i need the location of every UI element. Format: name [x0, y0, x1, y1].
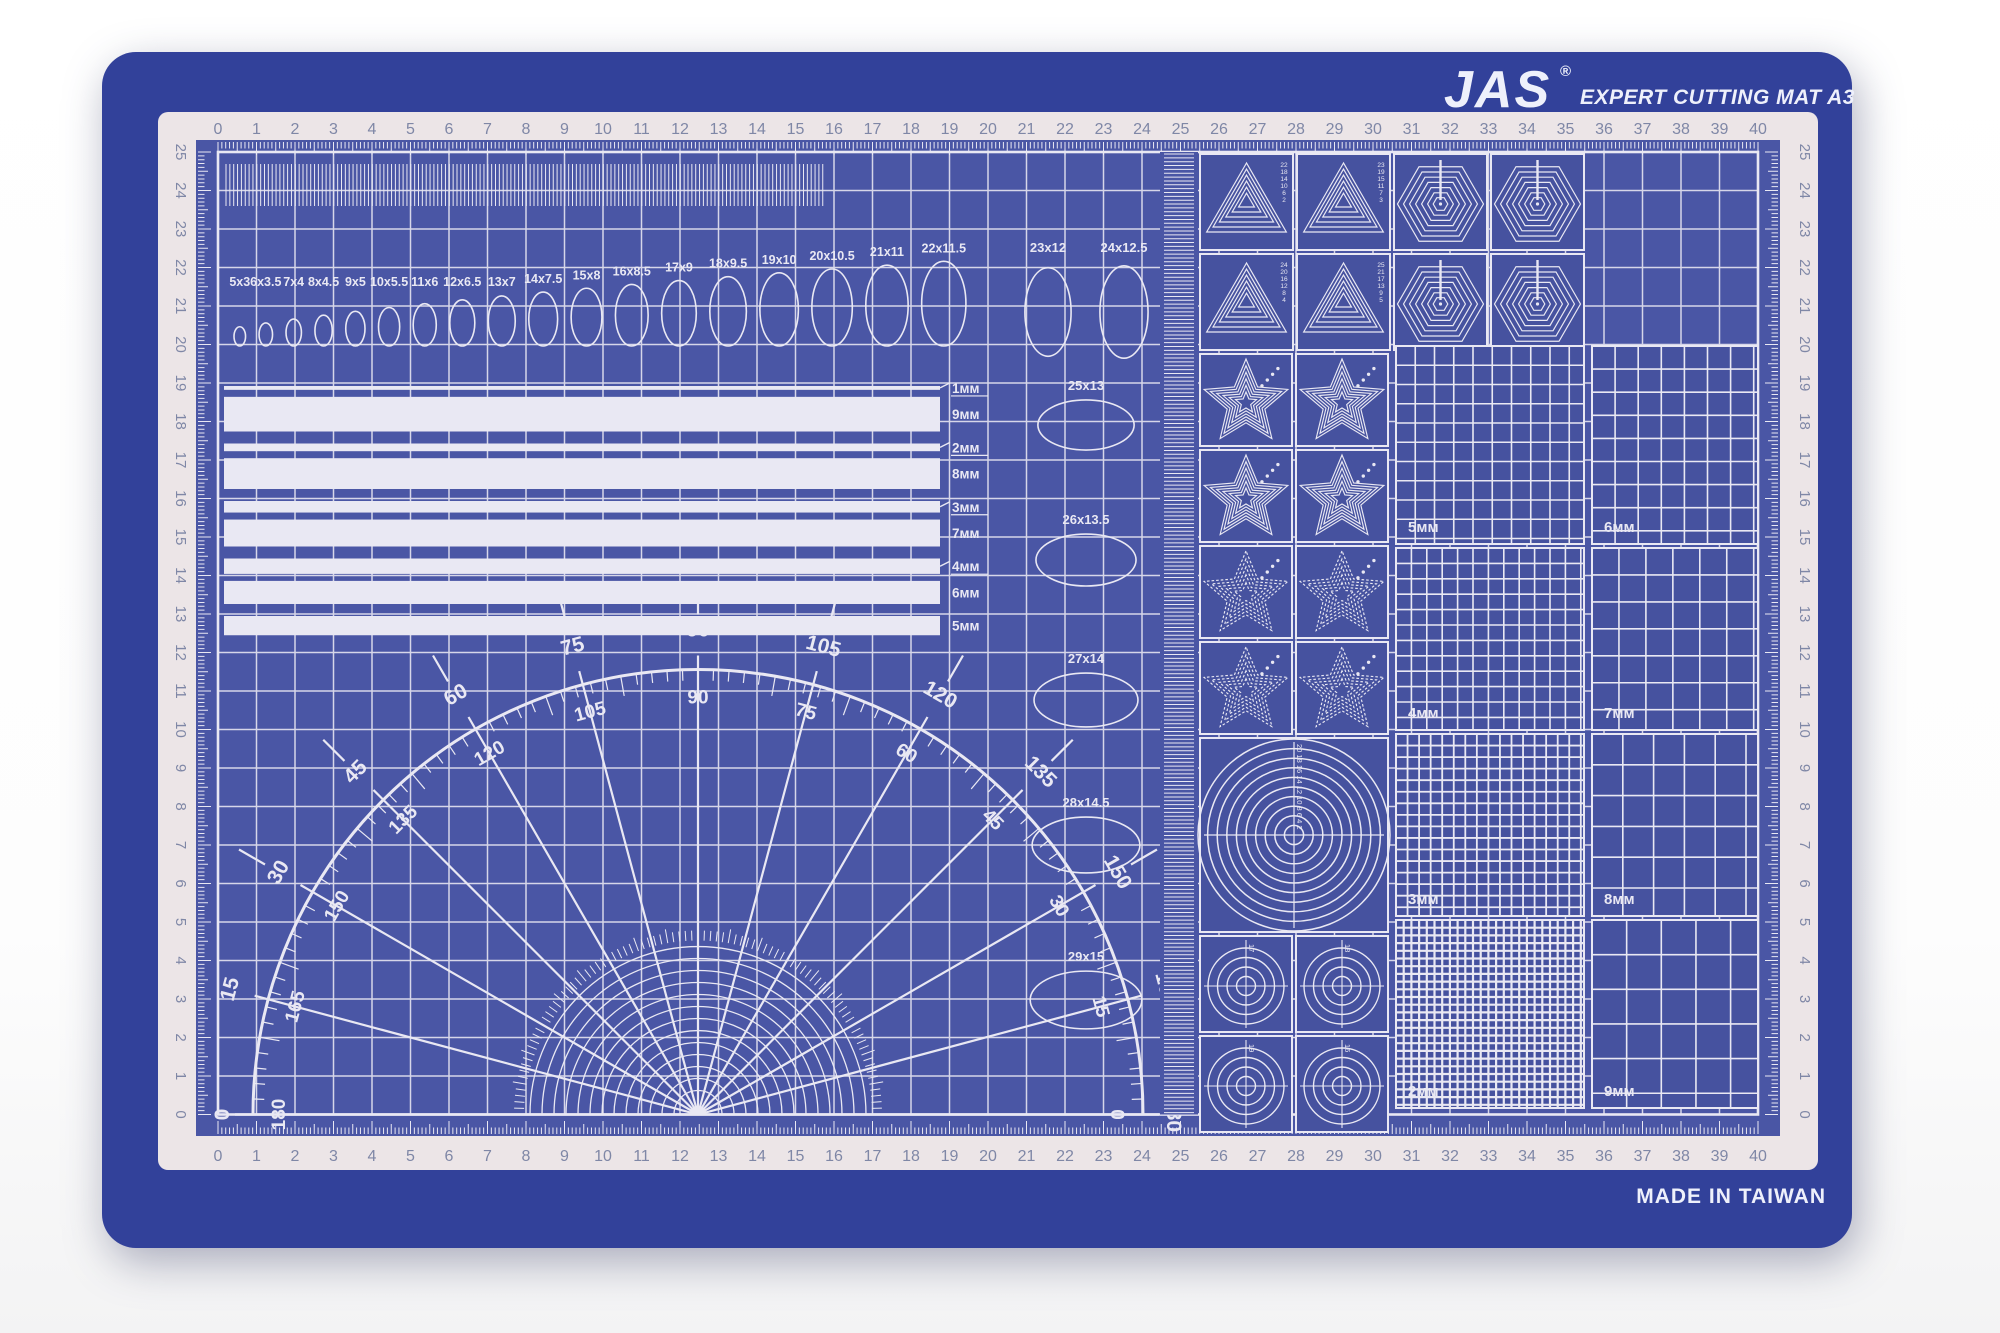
left-ruler-number: 9 — [172, 764, 189, 772]
strip-bar — [224, 559, 940, 574]
ellipse-label: 21x11 — [870, 245, 904, 259]
bottom-ruler-number: 2 — [291, 1148, 300, 1165]
right-ruler-number: 8 — [1796, 802, 1813, 810]
registered-mark-icon: ® — [1560, 63, 1571, 80]
bottom-ruler-number: 13 — [710, 1148, 728, 1165]
top-ruler-number: 36 — [1595, 121, 1613, 138]
right-ruler-number: 19 — [1796, 375, 1813, 392]
right-ruler-number: 22 — [1796, 259, 1813, 276]
star-size-mark — [1367, 565, 1370, 568]
hexagon-center-dot — [1536, 302, 1539, 305]
left-ruler-number: 13 — [172, 606, 189, 623]
right-ruler-number: 11 — [1796, 683, 1813, 699]
strip-label: 4мм — [952, 559, 979, 574]
right-ruler-number: 1 — [1796, 1072, 1813, 1080]
ellipse-label: 8x4.5 — [308, 275, 339, 289]
ellipse-label: 28x14.5 — [1063, 795, 1110, 810]
top-ruler-number: 15 — [787, 121, 805, 138]
top-ruler-number: 32 — [1441, 121, 1459, 138]
strip-label: 7мм — [952, 526, 979, 541]
ellipse-label: 7x4 — [283, 275, 304, 289]
right-ruler-number: 24 — [1796, 182, 1813, 199]
bottom-ruler-number: 16 — [825, 1148, 843, 1165]
cutting-mat-photo: 0011223344556677889910101111121213131414… — [0, 0, 2000, 1333]
strip-label: 3мм — [952, 500, 979, 515]
ellipse-label: 18x9.5 — [709, 257, 747, 271]
mat-title: EXPERT CUTTING MAT A3 — [1580, 86, 1855, 109]
star-size-mark — [1276, 655, 1279, 658]
ellipse-label: 19x10 — [762, 253, 797, 267]
top-ruler-number: 2 — [291, 121, 300, 138]
strip-bar — [224, 501, 940, 513]
angle-label-inner: 0 — [1106, 1109, 1127, 1120]
star-size-mark — [1260, 384, 1263, 387]
star-size-mark — [1266, 666, 1269, 669]
star-size-mark — [1260, 480, 1263, 483]
hexagon-center-dot — [1536, 202, 1539, 205]
top-ruler-number: 30 — [1364, 121, 1382, 138]
mm-grid-patch — [1396, 346, 1584, 544]
strip-bar — [224, 444, 940, 452]
ellipse-label: 16x8.5 — [613, 264, 651, 278]
left-ruler-number: 23 — [172, 221, 189, 238]
angle-label-inner: 180 — [269, 1099, 290, 1131]
top-ruler-number: 38 — [1672, 121, 1690, 138]
star-size-mark — [1271, 565, 1274, 568]
bottom-ruler-number: 37 — [1634, 1148, 1652, 1165]
ellipse-label: 25x13 — [1068, 378, 1104, 393]
mm-grid-patch — [1592, 920, 1758, 1108]
ellipse-label: 10x5.5 — [370, 275, 408, 289]
right-ruler-number: 16 — [1796, 490, 1813, 507]
star-size-mark — [1362, 570, 1365, 573]
mm-grid-patch — [1396, 920, 1584, 1108]
strip-bar — [224, 397, 940, 432]
bottom-ruler-number: 34 — [1518, 1148, 1536, 1165]
bottom-ruler-number: 27 — [1249, 1148, 1267, 1165]
top-ruler-number: 0 — [214, 121, 223, 138]
ellipse-label: 11x6 — [411, 275, 438, 289]
right-ruler-number: 5 — [1796, 918, 1813, 926]
top-ruler-number: 1 — [252, 121, 261, 138]
ellipse-label: 17x9 — [665, 261, 693, 275]
top-ruler-number: 3 — [329, 121, 338, 138]
left-ruler-number: 22 — [172, 259, 189, 276]
bottom-ruler-number: 25 — [1172, 1148, 1190, 1165]
target-size-number: 19 — [1247, 1044, 1256, 1052]
star-size-mark — [1372, 559, 1375, 562]
star-size-mark — [1271, 373, 1274, 376]
left-ruler-number: 12 — [172, 644, 189, 661]
ellipse-label: 29x15 — [1068, 949, 1104, 964]
bottom-ruler-number: 29 — [1326, 1148, 1344, 1165]
star-size-mark — [1260, 576, 1263, 579]
left-ruler-number: 15 — [172, 529, 189, 546]
bottom-ruler-number: 5 — [406, 1148, 415, 1165]
angle-label-outer: 0 — [211, 1109, 234, 1121]
strip-bar — [224, 520, 940, 547]
bottom-ruler-number: 4 — [368, 1148, 377, 1165]
made-in-label: MADE IN TAIWAN — [1636, 1185, 1826, 1208]
top-ruler-number: 16 — [825, 121, 843, 138]
top-ruler-number: 7 — [483, 121, 492, 138]
top-ruler-number: 22 — [1056, 121, 1074, 138]
bottom-ruler-number: 23 — [1095, 1148, 1113, 1165]
top-ruler-number: 28 — [1287, 121, 1305, 138]
bottom-ruler-number: 22 — [1056, 1148, 1074, 1165]
hexagon-center-dot — [1439, 302, 1442, 305]
left-ruler-number: 4 — [172, 956, 189, 964]
left-ruler-number: 24 — [172, 182, 189, 199]
ellipse-label: 26x13.5 — [1063, 512, 1110, 527]
star-size-mark — [1362, 474, 1365, 477]
star-size-mark — [1372, 463, 1375, 466]
angle-label-inner: 90 — [687, 688, 708, 709]
bottom-ruler-number: 15 — [787, 1148, 805, 1165]
bottom-ruler-number: 10 — [594, 1148, 612, 1165]
mm-grid-label: 9мм — [1604, 1083, 1635, 1100]
bottom-ruler-number: 8 — [522, 1148, 531, 1165]
mm-grid-label: 8мм — [1604, 891, 1635, 908]
bottom-ruler-number: 3 — [329, 1148, 338, 1165]
top-ruler-number: 39 — [1711, 121, 1729, 138]
top-ruler-number: 25 — [1172, 121, 1190, 138]
star-size-mark — [1362, 666, 1365, 669]
photo-stage: 0011223344556677889910101111121213131414… — [0, 0, 2000, 1333]
top-ruler-number: 6 — [445, 121, 454, 138]
thickness-strips: 1мм9мм2мм8мм3мм7мм4мм6мм5мм — [224, 381, 988, 635]
top-ruler-number: 35 — [1557, 121, 1575, 138]
right-ruler-number: 23 — [1796, 221, 1813, 238]
left-ruler-number: 21 — [172, 298, 189, 315]
bottom-ruler-number: 18 — [902, 1148, 920, 1165]
star-size-mark — [1276, 559, 1279, 562]
bottom-ruler-number: 0 — [214, 1148, 223, 1165]
mm-grid-label: 7мм — [1604, 705, 1635, 722]
target-size-number: 17 — [1247, 944, 1256, 952]
mm-grid-patch — [1592, 346, 1758, 544]
bottom-ruler-number: 17 — [864, 1148, 882, 1165]
brand-logo: JAS — [1444, 61, 1551, 119]
ellipse-label: 5x3 — [229, 275, 250, 289]
mm-grid-label: 2мм — [1408, 1083, 1439, 1100]
bottom-ruler-number: 38 — [1672, 1148, 1690, 1165]
left-ruler-number: 2 — [172, 1033, 189, 1041]
bottom-ruler-number: 1 — [252, 1148, 261, 1165]
ellipse-label: 13x7 — [488, 275, 516, 289]
star-size-mark — [1271, 469, 1274, 472]
bottom-ruler-number: 20 — [979, 1148, 997, 1165]
ellipse-label: 24x12.5 — [1101, 240, 1148, 255]
strip-bar — [224, 458, 940, 489]
bottom-ruler-number: 30 — [1364, 1148, 1382, 1165]
ellipse-label: 23x12 — [1030, 240, 1066, 255]
bottom-ruler-number: 36 — [1595, 1148, 1613, 1165]
left-ruler-number: 0 — [172, 1110, 189, 1118]
right-ruler-number: 14 — [1796, 567, 1813, 584]
left-ruler-number: 18 — [172, 413, 189, 430]
star-size-mark — [1367, 661, 1370, 664]
mm-grid-label: 4мм — [1408, 705, 1439, 722]
top-ruler-number: 21 — [1018, 121, 1036, 138]
angle-label-outer: 90 — [686, 619, 709, 642]
star-size-mark — [1276, 367, 1279, 370]
ellipse-label: 14x7.5 — [524, 272, 562, 286]
top-ruler-number: 29 — [1326, 121, 1344, 138]
left-ruler-number: 5 — [172, 918, 189, 926]
right-ruler-number: 21 — [1796, 298, 1813, 315]
star-size-mark — [1260, 672, 1263, 675]
bottom-ruler-number: 39 — [1711, 1148, 1729, 1165]
bottom-mm-ruler-ticks — [218, 1121, 1758, 1134]
mm-grid-patch — [1396, 734, 1584, 916]
ellipse-label: 6x3.5 — [250, 275, 281, 289]
top-ruler-number: 23 — [1095, 121, 1113, 138]
bottom-ruler-number: 14 — [748, 1148, 766, 1165]
star-size-mark — [1356, 480, 1359, 483]
star-size-mark — [1356, 672, 1359, 675]
left-ruler-number: 1 — [172, 1072, 189, 1080]
right-ruler-number: 17 — [1796, 452, 1813, 469]
top-ruler-number: 20 — [979, 121, 997, 138]
left-ruler-number: 20 — [172, 336, 189, 353]
bottom-ruler-number: 26 — [1210, 1148, 1228, 1165]
top-ruler-number: 31 — [1403, 121, 1421, 138]
star-size-mark — [1271, 661, 1274, 664]
strip-bar — [224, 616, 940, 635]
ellipse-label: 22x11.5 — [922, 241, 967, 255]
star-size-mark — [1356, 576, 1359, 579]
star-size-mark — [1356, 384, 1359, 387]
left-ruler-number: 10 — [172, 721, 189, 738]
bottom-ruler-number: 11 — [633, 1148, 650, 1165]
right-ruler-number: 6 — [1796, 879, 1813, 887]
top-ruler-number: 11 — [633, 121, 650, 138]
top-ruler-number: 34 — [1518, 121, 1536, 138]
strip-bar — [224, 581, 940, 604]
strip-label: 2мм — [952, 440, 979, 455]
right-ruler-number: 13 — [1796, 606, 1813, 623]
right-ruler-number: 15 — [1796, 529, 1813, 546]
ellipse-label: 15x8 — [573, 268, 601, 282]
bottom-ruler-number: 35 — [1557, 1148, 1575, 1165]
star-size-mark — [1276, 463, 1279, 466]
top-ruler-number: 26 — [1210, 121, 1228, 138]
top-ruler-number: 14 — [748, 121, 766, 138]
strip-label: 8мм — [952, 467, 979, 482]
mm-grid-label: 5мм — [1408, 519, 1439, 536]
left-ruler-number: 14 — [172, 567, 189, 584]
bottom-ruler-number: 7 — [483, 1148, 492, 1165]
right-ruler-number: 25 — [1796, 144, 1813, 161]
star-size-mark — [1372, 655, 1375, 658]
bottom-ruler-number: 40 — [1749, 1148, 1767, 1165]
left-ruler-number: 19 — [172, 375, 189, 392]
right-ruler-number: 4 — [1796, 956, 1813, 964]
ellipse-label: 12x6.5 — [443, 275, 481, 289]
bottom-ruler-number: 12 — [671, 1148, 689, 1165]
top-ruler-number: 40 — [1749, 121, 1767, 138]
strip-label: 1мм — [952, 381, 979, 396]
right-ruler-number: 2 — [1796, 1033, 1813, 1041]
star-size-mark — [1372, 367, 1375, 370]
bottom-ruler-number: 24 — [1133, 1148, 1151, 1165]
top-ruler-number: 37 — [1634, 121, 1652, 138]
hexagon-center-dot — [1439, 202, 1442, 205]
left-ruler-number: 11 — [172, 683, 189, 699]
bottom-ruler-number: 32 — [1441, 1148, 1459, 1165]
top-ruler-number: 8 — [522, 121, 531, 138]
left-ruler-number: 17 — [172, 452, 189, 469]
top-ruler-number: 13 — [710, 121, 728, 138]
right-ruler-number: 0 — [1796, 1110, 1813, 1118]
bottom-ruler-number: 6 — [445, 1148, 454, 1165]
bottom-ruler-number: 31 — [1403, 1148, 1421, 1165]
strip-label: 9мм — [952, 407, 979, 422]
bottom-ruler-number: 21 — [1018, 1148, 1036, 1165]
top-ruler-number: 27 — [1249, 121, 1267, 138]
right-ruler-number: 20 — [1796, 336, 1813, 353]
bottom-ruler-number: 19 — [941, 1148, 959, 1165]
bottom-ruler-number: 28 — [1287, 1148, 1305, 1165]
left-ruler-number: 3 — [172, 995, 189, 1003]
top-ruler-number: 18 — [902, 121, 920, 138]
top-ruler-number: 10 — [594, 121, 612, 138]
left-ruler-number: 8 — [172, 802, 189, 810]
top-ruler-number: 5 — [406, 121, 415, 138]
bottom-ruler-number: 33 — [1480, 1148, 1498, 1165]
top-ruler-number: 4 — [368, 121, 377, 138]
strip-label: 5мм — [952, 619, 979, 634]
right-ruler-number: 9 — [1796, 764, 1813, 772]
top-ruler-number: 33 — [1480, 121, 1498, 138]
right-ruler-number: 18 — [1796, 413, 1813, 430]
star-size-mark — [1362, 378, 1365, 381]
left-ruler-number: 6 — [172, 879, 189, 887]
ellipse-label: 20x10.5 — [809, 249, 854, 263]
circle-size-numbers: 20 18 16 14 12 10 8 6 4 2 — [1295, 744, 1304, 830]
top-ruler-number: 12 — [671, 121, 689, 138]
top-ruler-number: 24 — [1133, 121, 1151, 138]
ellipse-label: 27x14 — [1068, 651, 1105, 666]
left-ruler-number: 25 — [172, 144, 189, 161]
target-size-number: 18 — [1343, 944, 1352, 952]
mm-grid-label: 3мм — [1408, 891, 1439, 908]
star-size-mark — [1367, 469, 1370, 472]
mm-grid-label: 6мм — [1604, 519, 1635, 536]
right-ruler-number: 7 — [1796, 841, 1813, 849]
target-size-number: 16 — [1343, 1044, 1352, 1052]
strip-bar — [224, 386, 940, 390]
left-ruler-number: 7 — [172, 841, 189, 849]
star-size-mark — [1266, 474, 1269, 477]
right-ruler-number: 10 — [1796, 721, 1813, 738]
top-ruler-number: 9 — [560, 121, 569, 138]
top-ruler-number: 19 — [941, 121, 959, 138]
right-ruler-number: 3 — [1796, 995, 1813, 1003]
strip-label: 6мм — [952, 585, 979, 600]
top-ruler-number: 17 — [864, 121, 882, 138]
star-size-mark — [1266, 570, 1269, 573]
star-size-mark — [1367, 373, 1370, 376]
right-ruler-number: 12 — [1796, 644, 1813, 661]
ellipse-label: 9x5 — [345, 275, 366, 289]
bottom-ruler-number: 9 — [560, 1148, 569, 1165]
star-size-mark — [1266, 378, 1269, 381]
left-ruler-number: 16 — [172, 490, 189, 507]
